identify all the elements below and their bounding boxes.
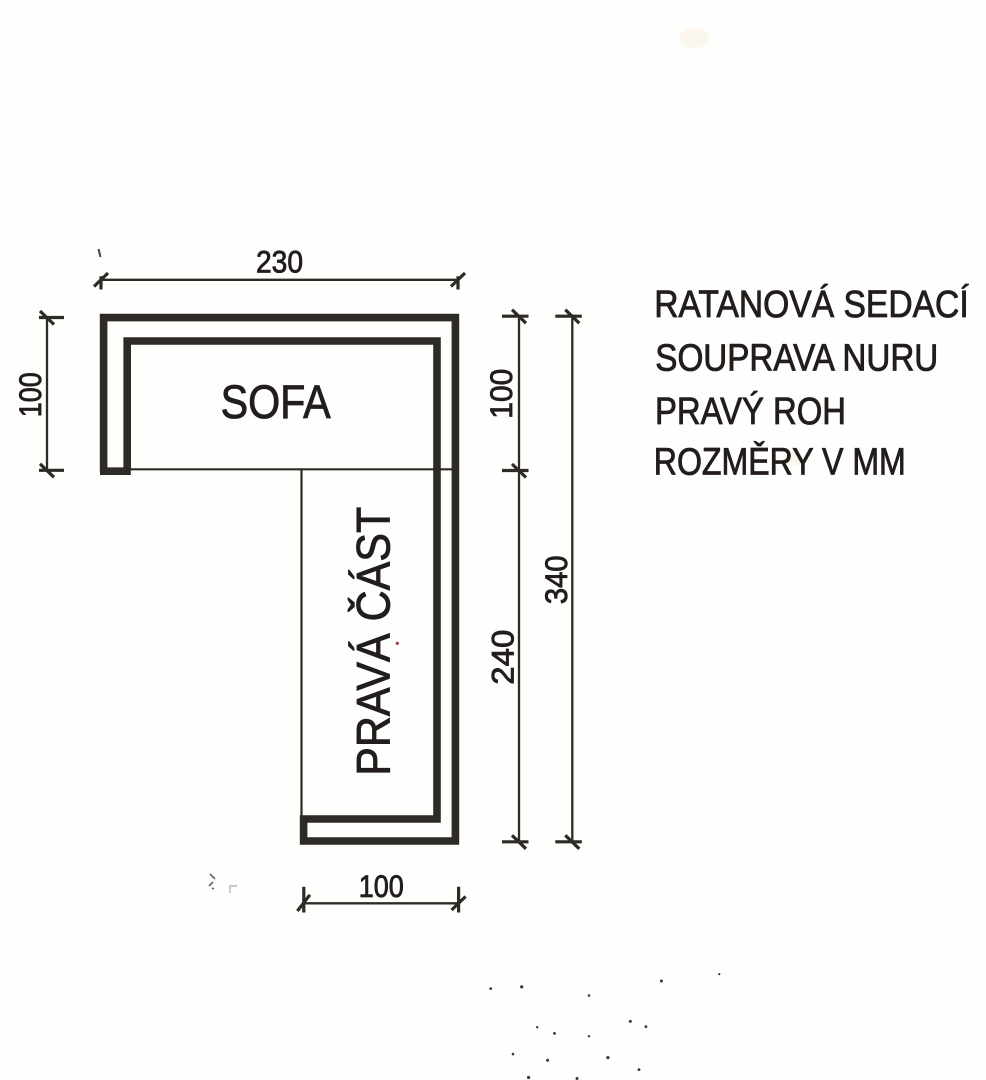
svg-text:PRAVÝ ROH: PRAVÝ ROH <box>655 390 846 433</box>
svg-text:PRAVÁ ČÁST: PRAVÁ ČÁST <box>347 507 400 776</box>
svg-text:RATANOVÁ SEDACÍ: RATANOVÁ SEDACÍ <box>654 283 969 326</box>
svg-text:100: 100 <box>359 868 404 904</box>
svg-text:100: 100 <box>483 369 519 419</box>
svg-text:SOUPRAVA NURU: SOUPRAVA NURU <box>655 337 938 379</box>
svg-text:ROZMĚRY V MM: ROZMĚRY V MM <box>654 441 906 484</box>
svg-text:340: 340 <box>538 556 574 605</box>
svg-text:100: 100 <box>12 372 48 417</box>
svg-text:240: 240 <box>485 630 521 685</box>
svg-text:230: 230 <box>256 244 303 280</box>
svg-text:SOFA: SOFA <box>221 375 332 428</box>
